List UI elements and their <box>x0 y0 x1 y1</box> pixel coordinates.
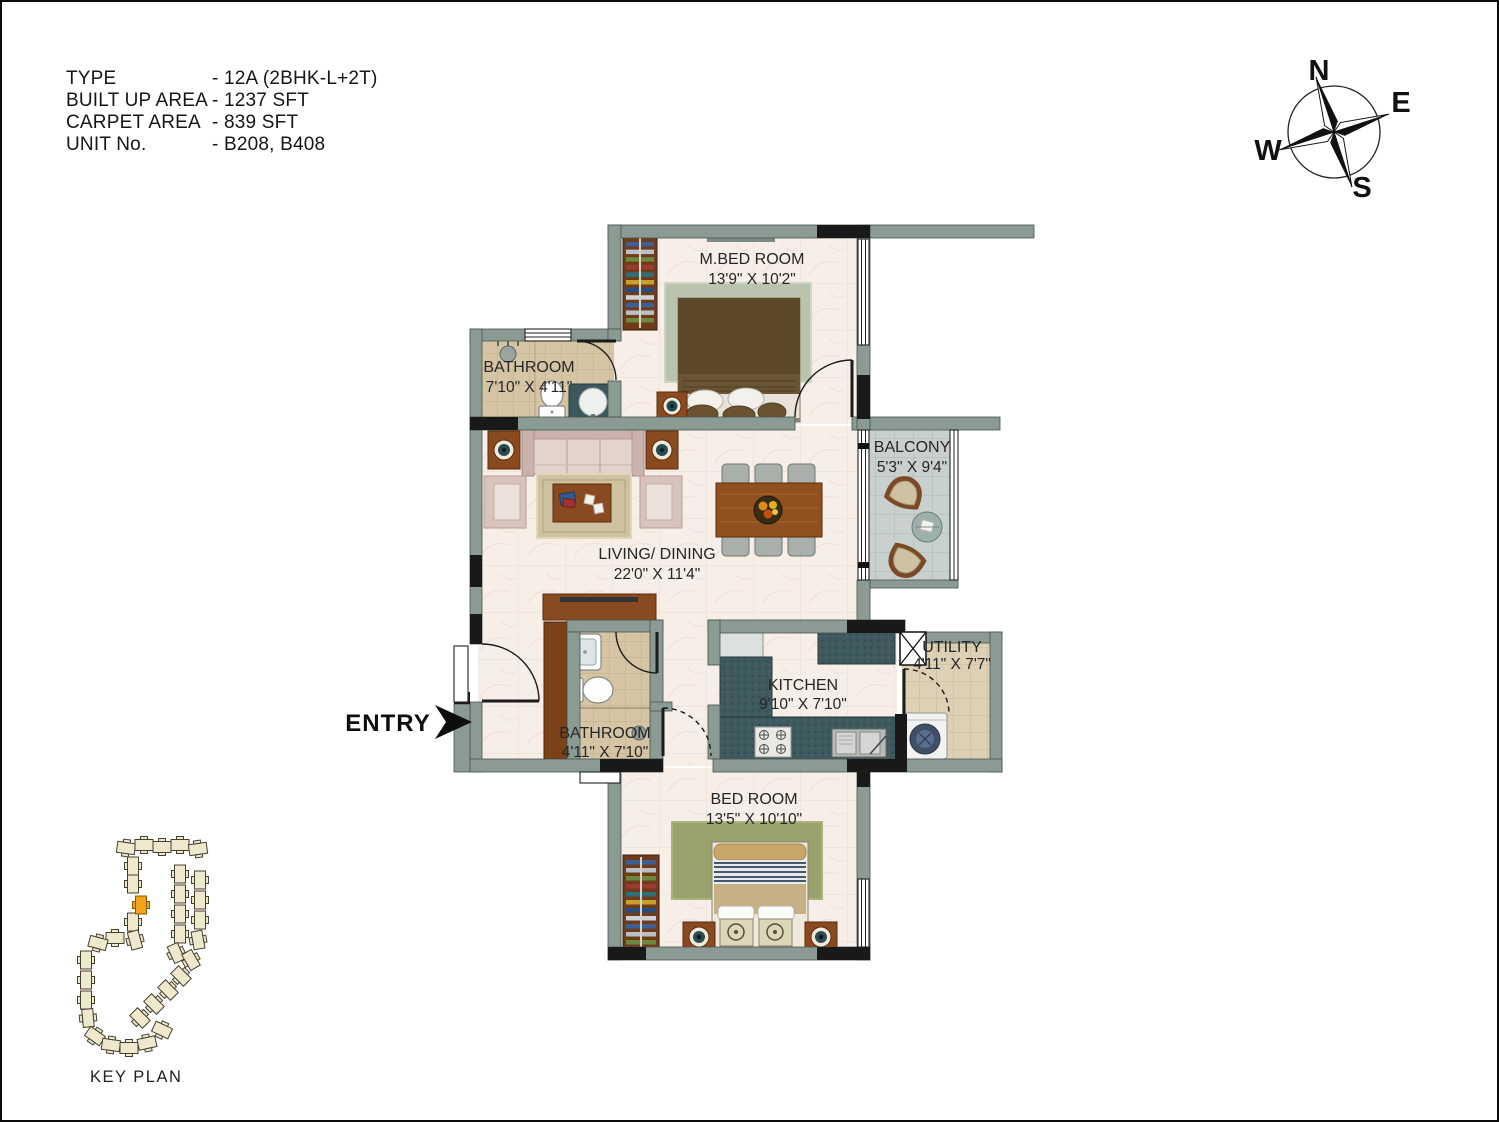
side-table-icon <box>488 431 520 469</box>
sliding-door <box>858 430 869 580</box>
room-dims: 13'5" X 10'10" <box>706 811 802 828</box>
room-dims: 7'10" X 4'11" <box>486 379 572 396</box>
sofa-icon <box>522 428 644 476</box>
washing-machine-icon <box>903 713 947 759</box>
key-plan: KEY PLAN <box>78 837 209 1087</box>
room-label: KITCHEN <box>768 677 838 694</box>
window <box>858 879 869 947</box>
utility-fixtures <box>903 713 947 759</box>
room-label: LIVING/ DINING <box>598 546 715 563</box>
floor-plan-page: TYPE - 12A (2BHK-L+2T) BUILT UP AREA - 1… <box>0 0 1499 1122</box>
balcony-railing <box>950 430 958 580</box>
side-table-icon <box>657 392 687 420</box>
entry-label: ENTRY <box>345 710 430 737</box>
stove-icon <box>755 727 791 757</box>
compass-w-label: W <box>1254 135 1282 167</box>
entry-step <box>454 646 468 702</box>
room-label: BED ROOM <box>710 791 797 808</box>
dining-table-icon <box>716 483 822 537</box>
sink-icon <box>832 729 886 757</box>
room-dims: 4'11" X 7'7" <box>913 656 991 673</box>
key-plan-buildings <box>78 837 209 1057</box>
window <box>858 239 869 345</box>
compass-star-icon <box>1261 59 1407 205</box>
coffee-table-icon <box>553 484 611 522</box>
wardrobe-icon <box>623 236 657 330</box>
threshold <box>580 772 620 783</box>
room-label: BATHROOM <box>483 359 574 376</box>
room-dims: 13'9" X 10'2" <box>708 271 796 288</box>
armchair-icon <box>640 476 682 528</box>
side-table-icon <box>646 431 678 469</box>
tv-unit-icon <box>543 594 656 620</box>
key-plan-label: KEY PLAN <box>90 1068 182 1086</box>
balcony-table-icon <box>912 512 942 542</box>
wardrobe-icon <box>623 855 659 951</box>
window <box>525 329 571 341</box>
compass-s-label: S <box>1352 172 1371 204</box>
room-dims: 9'10" X 7'10" <box>759 696 847 713</box>
entry-marker: ENTRY <box>345 705 472 739</box>
compass-e-label: E <box>1391 87 1410 119</box>
room-label: M.BED ROOM <box>700 251 805 268</box>
room-label: UTILITY <box>922 639 982 656</box>
bed-icon <box>712 842 808 959</box>
compass-rose: N E W S <box>1254 55 1410 205</box>
room-dims: 22'0" X 11'4" <box>614 566 700 583</box>
room-dims: 4'11" X 7'10" <box>562 744 648 761</box>
armchair-icon <box>484 476 526 528</box>
floor-plan-drawing: M.BED ROOM 13'9" X 10'2" BATHROOM 7'10" … <box>2 2 1499 1122</box>
room-label: BALCONY <box>874 439 951 456</box>
compass-n-label: N <box>1309 55 1330 87</box>
bed-icon <box>678 298 800 424</box>
room-label: BATHROOM <box>559 725 650 742</box>
room-dims: 5'3" X 9'4" <box>877 459 947 476</box>
